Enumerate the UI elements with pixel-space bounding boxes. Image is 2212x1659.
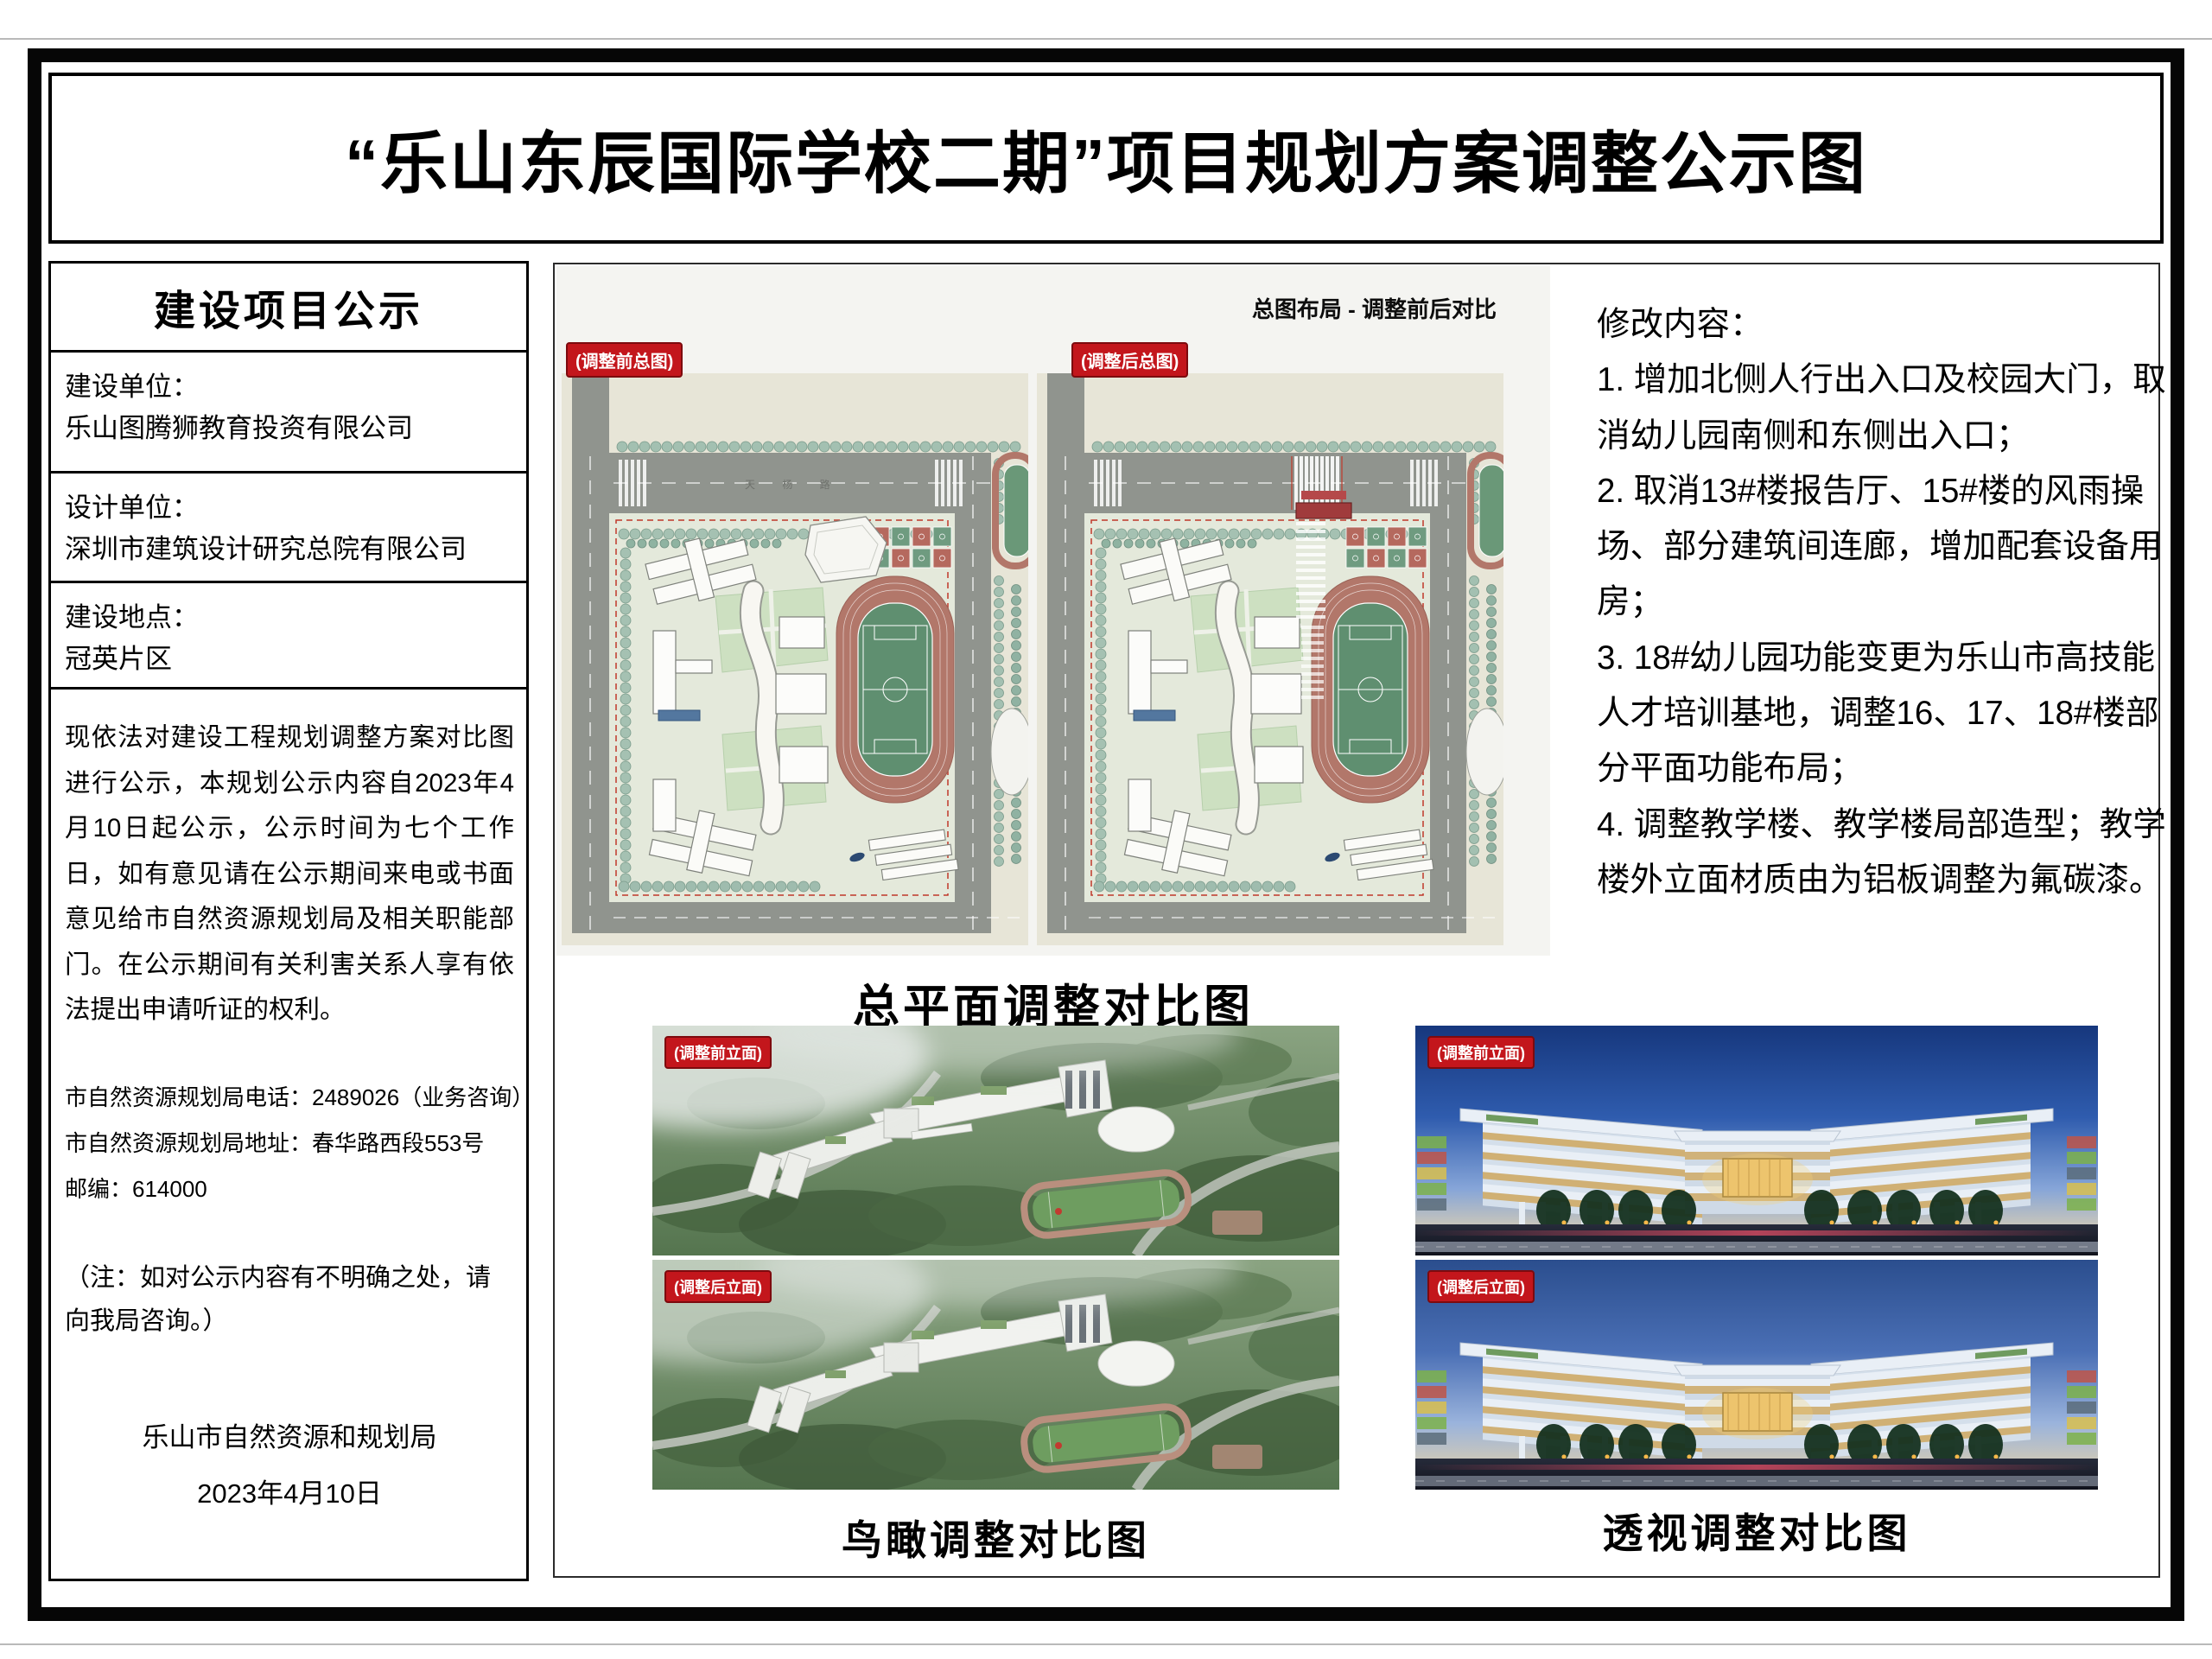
badge-after-siteplan: (调整后总图) [1071, 342, 1188, 378]
site-plan-panel-title: 总图布局 - 调整前后对比 [1252, 292, 1497, 324]
site-plan-panel: 总图布局 - 调整前后对比 (调整前总图) (调整后总图) 天 杨 路 [556, 266, 1550, 956]
birdseye-after-image: (调整后立面) [652, 1260, 1339, 1490]
designer-label: 设计单位： [65, 487, 512, 529]
contact-phone: 市自然资源规划局电话：2489026（业务咨询） [65, 1075, 514, 1121]
badge-before-birdseye: (调整前立面) [664, 1036, 772, 1069]
modification-item: 2. 取消13#楼报告厅、15#楼的风雨操场、部分建筑间连廊，增加配套设备用房； [1597, 464, 2174, 631]
contact-address: 市自然资源规划局地址：春华路西段553号 [65, 1121, 514, 1166]
designer-value: 深圳市建筑设计研究总院有限公司 [65, 529, 512, 570]
perspective-before-image: (调整前立面) [1415, 1026, 2098, 1255]
location-value: 冠英片区 [65, 639, 512, 680]
birdseye-before-image: (调整前立面) [652, 1026, 1339, 1255]
birdseye-figure: (调整前立面) (调整后立面) [652, 1026, 1339, 1490]
agency-signature: 乐山市自然资源和规划局 [65, 1415, 514, 1454]
location-label: 建设地点： [65, 597, 512, 639]
field-row-builder: 建设单位： 乐山图腾狮教育投资有限公司 [51, 353, 526, 474]
site-plan-after-image [1037, 373, 1503, 945]
page-edge-line-bottom [0, 1643, 2212, 1645]
svg-text:天 杨 路: 天 杨 路 [745, 478, 842, 491]
badge-before-siteplan: (调整前总图) [566, 342, 683, 378]
modification-item: 1. 增加北侧人行出入口及校园大门，取消幼儿园南侧和东侧出入口； [1597, 353, 2174, 464]
builder-label: 建设单位： [65, 366, 512, 408]
sidebar-footnote: （注：如对公示内容有不明确之处，请向我局咨询。） [65, 1257, 514, 1343]
notice-date: 2023年4月10日 [65, 1471, 514, 1510]
contact-postcode: 邮编：614000 [65, 1166, 514, 1212]
caption-perspective: 透视调整对比图 [1415, 1500, 2098, 1560]
perspective-figure: (调整前立面) (调整后立面) [1415, 1026, 2098, 1490]
modifications-heading: 修改内容： [1597, 297, 2174, 353]
badge-before-perspective: (调整前立面) [1427, 1036, 1535, 1069]
builder-value: 乐山图腾狮教育投资有限公司 [65, 408, 512, 449]
badge-after-birdseye: (调整后立面) [664, 1270, 772, 1303]
badge-after-perspective: (调整后立面) [1427, 1270, 1535, 1303]
field-row-location: 建设地点： 冠英片区 [51, 583, 526, 690]
notice-paragraph: 现依法对建设工程规划调整方案对比图进行公示，本规划公示内容自2023年4月10日… [65, 715, 514, 1033]
caption-birdseye: 鸟瞰调整对比图 [652, 1507, 1339, 1567]
sidebar-header: 建设项目公示 [51, 264, 526, 353]
field-row-designer: 设计单位： 深圳市建筑设计研究总院有限公司 [51, 474, 526, 583]
perspective-after-image: (调整后立面) [1415, 1260, 2098, 1490]
page-title: “乐山东辰国际学校二期”项目规划方案调整公示图 [345, 110, 1867, 207]
sidebar-body: 现依法对建设工程规划调整方案对比图进行公示，本规划公示内容自2023年4月10日… [51, 690, 526, 1510]
modifications-column: 修改内容： 1. 增加北侧人行出入口及校园大门，取消幼儿园南侧和东侧出入口； 2… [1597, 297, 2174, 908]
site-plan-before-image: 天 杨 路 [562, 373, 1028, 945]
page-edge-line-top [0, 38, 2212, 40]
sidebar-notice-box: 建设项目公示 建设单位： 乐山图腾狮教育投资有限公司 设计单位： 深圳市建筑设计… [48, 261, 529, 1581]
title-box: “乐山东辰国际学校二期”项目规划方案调整公示图 [48, 73, 2164, 244]
content-box: 总图布局 - 调整前后对比 (调整前总图) (调整后总图) 天 杨 路 总平面调… [553, 263, 2160, 1578]
modification-item: 3. 18#幼儿园功能变更为乐山市高技能人才培训基地，调整16、17、18#楼部… [1597, 631, 2174, 798]
modification-item: 4. 调整教学楼、教学楼局部造型；教学楼外立面材质由为铝板调整为氟碳漆。 [1597, 798, 2174, 909]
